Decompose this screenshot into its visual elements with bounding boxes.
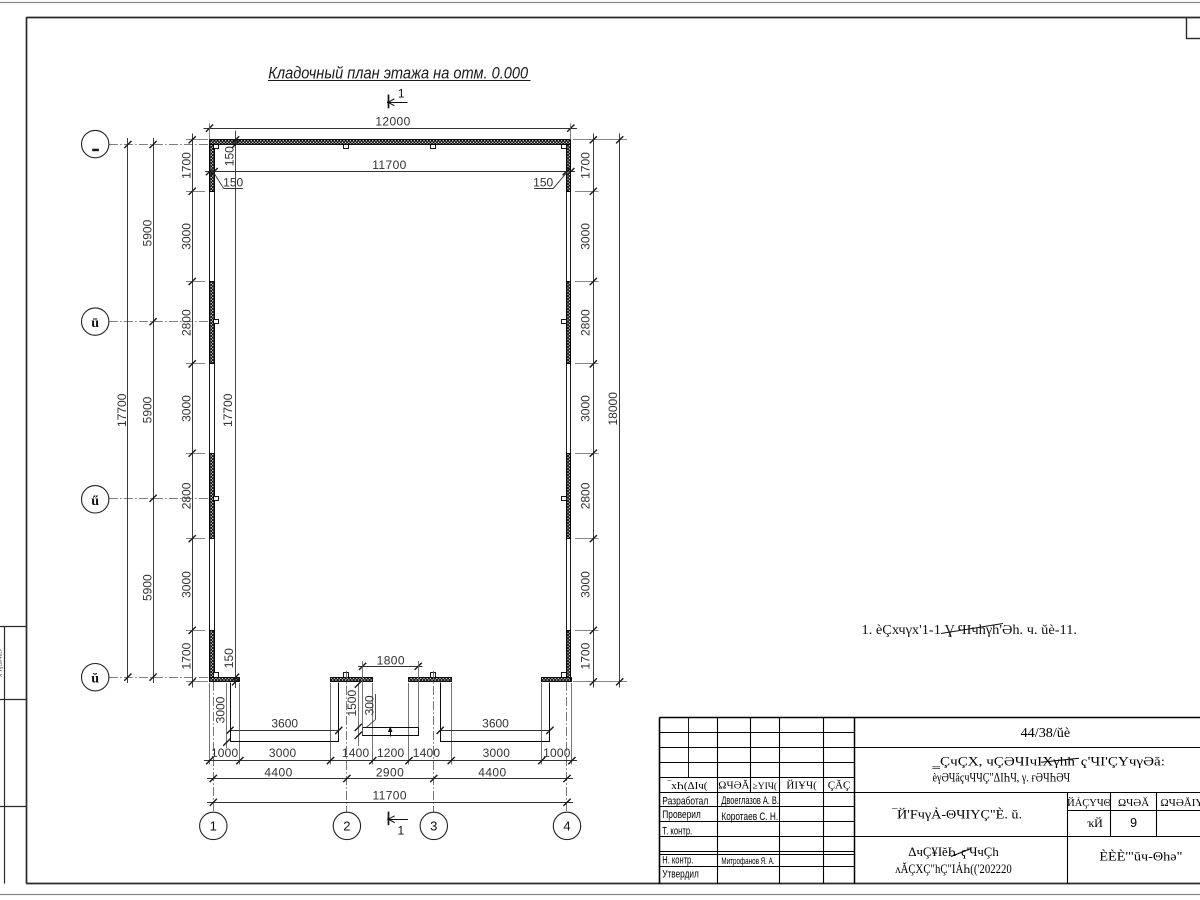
svg-text:3600: 3600 bbox=[271, 716, 298, 730]
svg-text:Проверил: Проверил bbox=[662, 809, 701, 821]
svg-text:ū: ū bbox=[91, 316, 99, 331]
svg-text:ʌĂÇХÇ"hÇ"ΙẢҺ(('202220: ʌĂÇХÇ"hÇ"ΙẢҺ(('202220 bbox=[895, 861, 1012, 876]
svg-text:3000: 3000 bbox=[269, 746, 297, 760]
svg-text:17700: 17700 bbox=[221, 393, 235, 427]
svg-text:2900: 2900 bbox=[376, 766, 404, 780]
svg-text:‗ÇчÇХ, чÇƏЧΙчΙХγhh ҁ'ЧΙ'ÇҮчγƏ: ‗ÇчÇХ, чÇƏЧΙчΙХγhh ҁ'ЧΙ'ÇҮчγƏă: bbox=[931, 753, 1165, 768]
svg-text:2800: 2800 bbox=[179, 309, 193, 336]
svg-text:3000: 3000 bbox=[179, 223, 193, 250]
svg-text:ΔчÇ¥ΙĕҺ ҁ'ЧчÇh: ΔчÇ¥ΙĕҺ ҁ'ЧчÇh bbox=[908, 844, 999, 859]
svg-text:ŭ: ŭ bbox=[91, 672, 99, 687]
svg-text:1700: 1700 bbox=[179, 642, 193, 669]
svg-text:3000: 3000 bbox=[483, 746, 511, 760]
svg-text:1. èÇхчγх'1-1 Ɣ ϤΙчhγh'Əh. ч.: 1. èÇхчγх'1-1 Ɣ ϤΙчhγh'Əh. ч. ŭè-11. bbox=[862, 623, 1078, 638]
svg-text:12000: 12000 bbox=[375, 114, 410, 128]
svg-text:‾хҺ(ΔΙч(: ‾хҺ(ΔΙч( bbox=[667, 780, 708, 792]
svg-text:1200: 1200 bbox=[377, 746, 405, 760]
svg-text:1400: 1400 bbox=[413, 746, 441, 760]
svg-text:17700: 17700 bbox=[115, 393, 129, 427]
svg-text:300: 300 bbox=[362, 695, 376, 715]
svg-text:2: 2 bbox=[343, 819, 350, 834]
svg-text:Митрофанов Я. А.: Митрофанов Я. А. bbox=[721, 856, 774, 867]
svg-text:Кладочный план этажа на отм. 0: Кладочный план этажа на отм. 0.000 bbox=[268, 63, 528, 82]
svg-text:1400: 1400 bbox=[342, 746, 370, 760]
svg-text:3000: 3000 bbox=[579, 395, 593, 422]
svg-text:1000: 1000 bbox=[211, 746, 239, 760]
svg-text:4: 4 bbox=[563, 819, 570, 834]
svg-text:1: 1 bbox=[210, 819, 217, 834]
svg-text:18000: 18000 bbox=[606, 392, 620, 426]
svg-text:Двоеглазов А. В.: Двоеглазов А. В. bbox=[721, 795, 779, 807]
svg-text:Н. контр.: Н. контр. bbox=[662, 855, 693, 867]
svg-text:3000: 3000 bbox=[179, 571, 193, 598]
svg-text:5900: 5900 bbox=[140, 574, 154, 601]
svg-text:Т. контр.: Т. контр. bbox=[662, 825, 692, 837]
svg-text:1700: 1700 bbox=[579, 152, 593, 179]
svg-text:4400: 4400 bbox=[264, 766, 292, 780]
svg-text:ЙẢÇҮЧΘ: ЙẢÇҮЧΘ bbox=[1067, 797, 1112, 809]
svg-text:ÇĂÇ: ÇĂÇ bbox=[828, 780, 851, 792]
svg-text:44/38/ŭè: 44/38/ŭè bbox=[1021, 725, 1071, 740]
svg-text:ΩЧƏĂ: ΩЧƏĂ bbox=[718, 780, 749, 792]
svg-text:2800: 2800 bbox=[179, 482, 193, 509]
svg-text:Разработал: Разработал bbox=[662, 796, 708, 808]
svg-text:11700: 11700 bbox=[372, 789, 406, 803]
svg-text:5900: 5900 bbox=[140, 219, 154, 246]
svg-text:1000: 1000 bbox=[543, 746, 571, 760]
svg-text:Утвердил: Утвердил bbox=[662, 868, 699, 880]
svg-text:ΩЧƏĂΙҮ: ΩЧƏĂΙҮ bbox=[1161, 797, 1200, 809]
svg-text:1800: 1800 bbox=[377, 653, 405, 667]
svg-text:150: 150 bbox=[222, 648, 236, 668]
svg-text:4400: 4400 bbox=[478, 766, 506, 780]
svg-text:ΩЧƏĂ: ΩЧƏĂ bbox=[1118, 797, 1149, 809]
svg-text:2800: 2800 bbox=[579, 309, 593, 336]
svg-text:1: 1 bbox=[398, 823, 405, 837]
svg-text:3: 3 bbox=[430, 819, 437, 834]
svg-text:ű: ű bbox=[91, 494, 99, 509]
svg-text:Коротаев С. Н.: Коротаев С. Н. bbox=[721, 811, 778, 823]
svg-text:1500: 1500 bbox=[345, 690, 359, 717]
svg-text:9: 9 bbox=[1130, 816, 1137, 830]
svg-text:3000: 3000 bbox=[579, 223, 593, 250]
svg-text:11700: 11700 bbox=[372, 158, 406, 172]
svg-text:‾Й'FчγẢ-ΘЧΙҮÇ"È. ŭ.: ‾Й'FчγẢ-ΘЧΙҮÇ"È. ŭ. bbox=[891, 806, 1022, 821]
svg-text:ÈÈÈ'"ŭч-Θhə": ÈÈÈ'"ŭч-Θhə" bbox=[1099, 848, 1182, 863]
svg-text:ҡЙ: ҡЙ bbox=[1087, 816, 1103, 830]
svg-text:3000: 3000 bbox=[579, 571, 593, 598]
svg-text:150: 150 bbox=[223, 175, 243, 189]
svg-text:3000: 3000 bbox=[179, 395, 193, 422]
svg-text:150: 150 bbox=[533, 175, 553, 189]
svg-text:1700: 1700 bbox=[579, 642, 593, 669]
svg-text:5900: 5900 bbox=[140, 396, 154, 423]
svg-text:3600: 3600 bbox=[482, 716, 509, 730]
svg-text:3000: 3000 bbox=[213, 696, 227, 723]
svg-text:1: 1 bbox=[398, 86, 405, 100]
svg-text:èγƏЧăçчЧЧÇ"ΔΙҺЧ, γ. ғƏЧҺƏЧ: èγƏЧăçчЧЧÇ"ΔΙҺЧ, γ. ғƏЧҺƏЧ bbox=[932, 770, 1070, 785]
svg-text:150: 150 bbox=[222, 146, 236, 166]
svg-text:1700: 1700 bbox=[179, 152, 193, 179]
svg-text:хЧүΔІчŭЭ: хЧүΔІчŭЭ bbox=[0, 648, 4, 677]
svg-text:≥ҮΙЧ(: ≥ҮΙЧ( bbox=[753, 781, 778, 792]
svg-text:ЙΙҰЧ(: ЙΙҰЧ( bbox=[786, 780, 817, 792]
svg-text:2800: 2800 bbox=[579, 482, 593, 509]
